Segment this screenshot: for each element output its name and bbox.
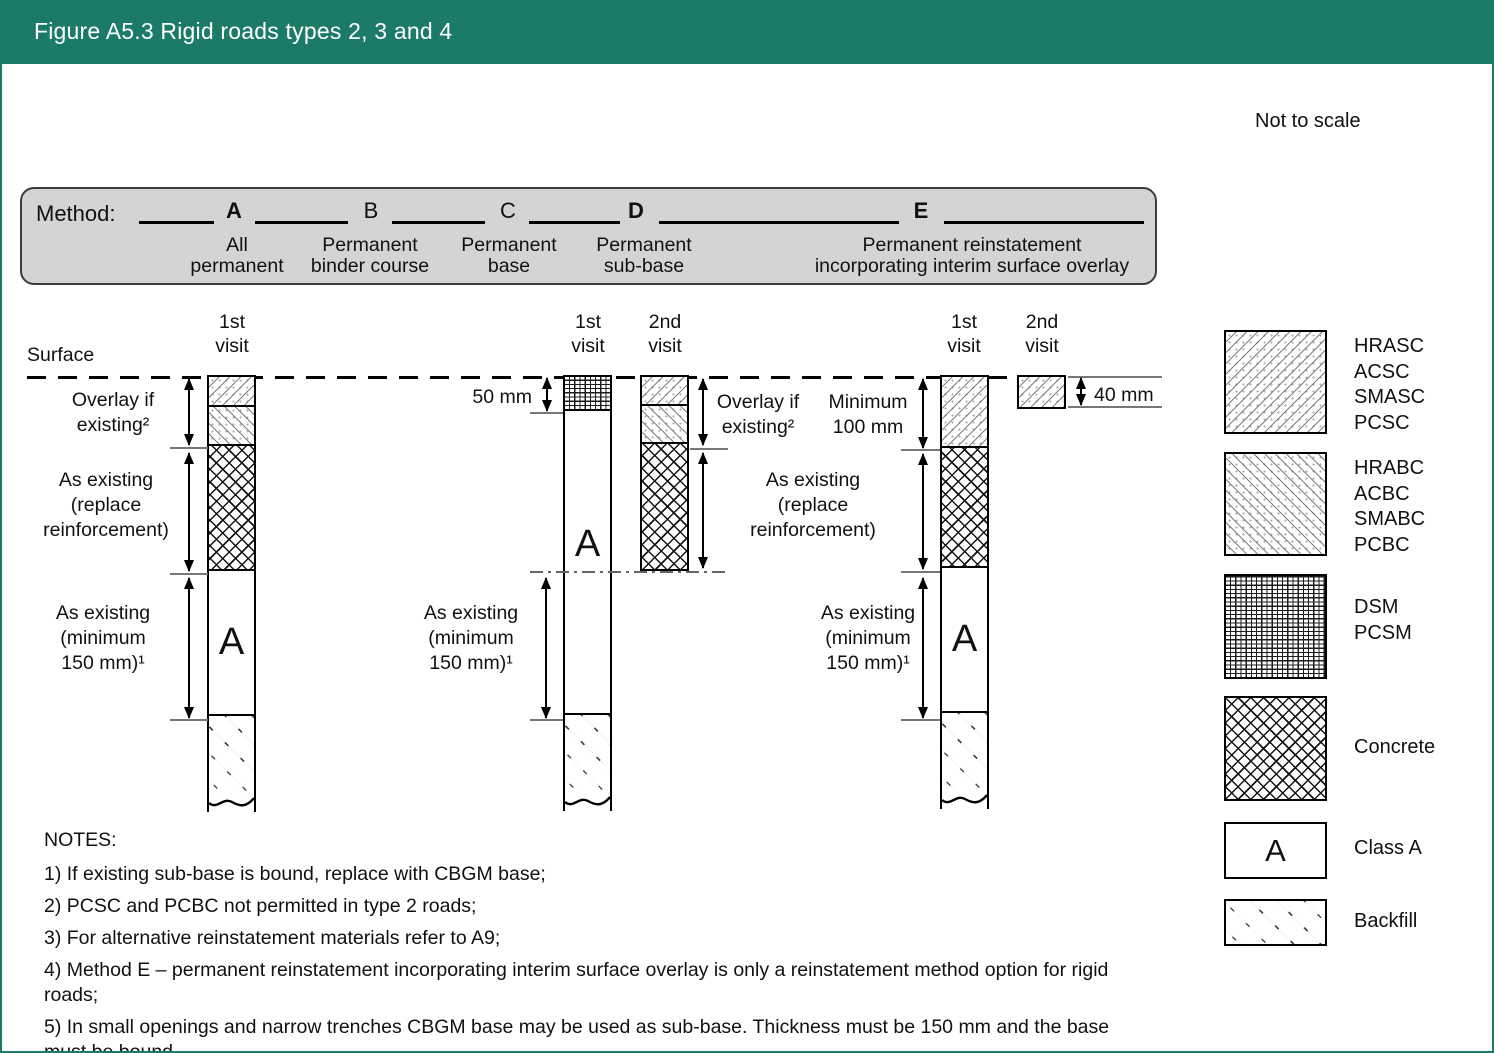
notes-section: NOTES: 1) If existing sub-base is bound,… (44, 828, 1119, 1053)
layer-binder-course-hrabc (209, 407, 254, 446)
dimension-arrow-overlay-d (702, 379, 704, 445)
trench-column-method-a: A (207, 375, 256, 812)
figure-page: Figure A5.3 Rigid roads types 2, 3 and 4… (0, 0, 1494, 1053)
label-overlay-if-existing-d: Overlay if existing² (708, 390, 808, 440)
surface-label: Surface (27, 343, 94, 368)
label-40mm: 40 mm (1094, 383, 1154, 408)
note-item-3: 3) For alternative reinstatement materia… (44, 926, 1119, 951)
figure-title: Figure A5.3 Rigid roads types 2, 3 and 4 (34, 18, 452, 45)
legend-swatch-dsm (1224, 574, 1327, 679)
surface-dashed-line (27, 376, 1010, 379)
method-bar: Method: A B C D E All permanent Permanen… (20, 187, 1157, 285)
method-desc-e: Permanent reinstatement incorporating in… (815, 235, 1129, 277)
layer-class-a: A (209, 571, 254, 716)
method-line-segment (529, 221, 620, 224)
legend-label-backfill: Backfill (1354, 909, 1417, 935)
method-line-segment (944, 221, 1144, 224)
layer-surface-course-hrasc (209, 377, 254, 407)
legend-label-hrasc: HRASC ACSC SMASC PCSC (1354, 334, 1425, 436)
layer-backfill (565, 715, 610, 793)
layer-backfill (942, 713, 987, 791)
label-as-existing-min150-a: As existing (minimum 150 mm)¹ (32, 601, 174, 676)
layer-class-a: A (565, 411, 610, 715)
dimension-arrow-40mm (1080, 378, 1082, 405)
label-50mm: 50 mm (457, 385, 532, 410)
label-as-existing-replace-de: As existing (replace reinforcement) (734, 468, 892, 543)
trench-column-e-second-visit (1017, 375, 1066, 409)
backfill-wave-edge (942, 791, 987, 809)
layer-binder-course-hrabc (642, 406, 687, 444)
note-item-1: 1) If existing sub-base is bound, replac… (44, 862, 1119, 887)
trench-column-e-first-visit: A (940, 375, 989, 809)
legend-swatch-concrete (1224, 696, 1327, 801)
tick-line (170, 573, 208, 575)
note-item-5: 5) In small openings and narrow trenches… (44, 1015, 1119, 1053)
method-line-segment (659, 221, 899, 224)
visit-header-e1: 1st visit (947, 310, 981, 358)
legend-label-concrete: Concrete (1354, 735, 1435, 761)
tick-line (530, 412, 563, 414)
method-desc-a: All permanent (190, 235, 283, 277)
title-bar: Figure A5.3 Rigid roads types 2, 3 and 4 (2, 2, 1492, 64)
dimension-arrow-50mm (546, 378, 548, 411)
dimension-arrow-concrete-e (922, 454, 924, 569)
method-letter-e: E (914, 198, 929, 224)
legend-label-hrabc: HRABC ACBC SMABC PCBC (1354, 456, 1425, 558)
tick-line (530, 719, 563, 721)
legend-label-dsm: DSM PCSM (1354, 595, 1412, 646)
method-letter-b: B (364, 198, 379, 224)
tick-line (901, 719, 940, 721)
label-as-existing-replace-a: As existing (replace reinforcement) (27, 468, 185, 543)
layer-dsm (565, 377, 610, 411)
dimension-arrow-concrete-d (702, 453, 704, 568)
backfill-wave-edge (565, 793, 610, 811)
method-desc-d: Permanent sub-base (596, 235, 691, 277)
dash-dot-level-line (530, 571, 726, 573)
legend-swatch-class-a: A (1224, 822, 1327, 879)
tick-line (901, 449, 940, 451)
label-as-existing-min150-mid: As existing (minimum 150 mm)¹ (400, 601, 542, 676)
class-a-letter: A (575, 523, 600, 566)
tick-line (690, 448, 728, 450)
dimension-arrow-concrete-a (188, 453, 190, 571)
layer-class-a: A (942, 568, 987, 713)
method-line-segment (139, 221, 214, 224)
method-line-segment (255, 221, 348, 224)
tick-line (170, 447, 208, 449)
layer-concrete (942, 448, 987, 568)
method-letter-d: D (628, 198, 644, 224)
dimension-arrow-overlay-a (188, 379, 190, 445)
visit-header-a1: 1st visit (215, 310, 249, 358)
method-line-segment (392, 221, 485, 224)
dimension-arrow-classa-a (188, 578, 190, 718)
layer-overlay-hrasc (942, 377, 987, 448)
dimension-arrow-min100-e (922, 379, 924, 448)
tick-line (901, 571, 940, 573)
legend-label-class-a: Class A (1354, 836, 1422, 862)
method-desc-b: Permanent binder course (311, 235, 429, 277)
visit-header-d2: 2nd visit (648, 310, 682, 358)
not-to-scale-note: Not to scale (1255, 110, 1361, 133)
layer-concrete (642, 444, 687, 569)
note-item-2: 2) PCSC and PCBC not permitted in type 2… (44, 894, 1119, 919)
class-a-letter: A (219, 621, 244, 664)
legend-swatch-hrabc (1224, 452, 1327, 556)
method-desc-c: Permanent base (461, 235, 556, 277)
tick-line (170, 719, 208, 721)
method-label: Method: (36, 201, 116, 227)
notes-heading: NOTES: (44, 828, 1119, 853)
legend-swatch-backfill (1224, 899, 1327, 946)
label-as-existing-min150-e: As existing (minimum 150 mm)¹ (797, 601, 939, 676)
legend-swatch-hrasc (1224, 330, 1327, 434)
class-a-letter: A (1265, 833, 1286, 869)
method-letter-c: C (500, 198, 516, 224)
label-overlay-if-existing-a: Overlay if existing² (42, 388, 184, 438)
visit-header-b1: 1st visit (571, 310, 605, 358)
visit-header-e2: 2nd visit (1025, 310, 1059, 358)
note-item-4: 4) Method E – permanent reinstatement in… (44, 958, 1119, 1008)
method-letter-a: A (226, 198, 242, 224)
backfill-wave-edge (209, 794, 254, 812)
label-minimum-100mm: Minimum 100 mm (808, 390, 928, 440)
class-a-letter: A (952, 618, 977, 661)
dimension-arrow-classa-mid (545, 578, 547, 718)
trench-column-d-second-visit (640, 375, 689, 571)
layer-surface-course-hrasc (642, 377, 687, 406)
layer-backfill (209, 716, 254, 794)
layer-concrete (209, 446, 254, 571)
trench-column-bcd-first-visit: A (563, 375, 612, 811)
